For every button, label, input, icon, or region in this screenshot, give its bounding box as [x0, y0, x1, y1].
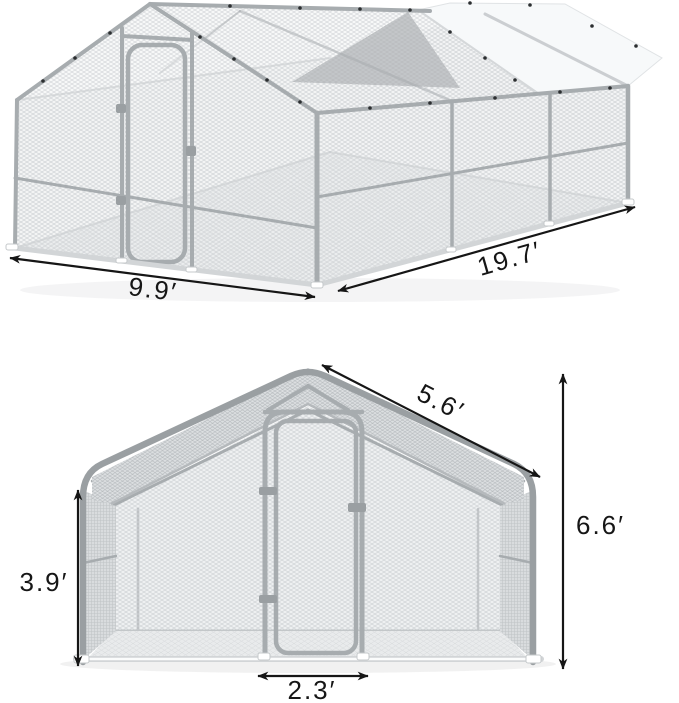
front-door-hinge-bottom [259, 595, 277, 603]
dim-label-front-total-height: 6.6′ [576, 510, 625, 540]
dim-label-front-door-width: 2.3′ [287, 675, 336, 703]
front-door-hinge-top [259, 487, 277, 495]
diagram-canvas: 9.9′ 19.7′ [0, 0, 679, 703]
dim-label-iso-width: 9.9′ [127, 271, 179, 307]
front-floor [86, 631, 530, 660]
front-right-wall-mesh [500, 490, 533, 660]
iso-door-hinge-top [116, 104, 126, 113]
iso-door-hinge-bottom [116, 196, 126, 205]
front-door-latch [348, 503, 366, 512]
iso-door-latch [186, 146, 196, 156]
iso-view: 9.9′ 19.7′ [6, 1, 662, 307]
front-left-wall-mesh [83, 490, 116, 660]
product-dimension-diagram: 9.9′ 19.7′ [0, 0, 679, 703]
front-view: 5.6′ 6.6′ 3.9′ 2.3′ [19, 365, 625, 703]
iso-front-left-post [15, 100, 17, 248]
dim-label-front-wall-height: 3.9′ [19, 567, 68, 597]
iso-right-wall-mesh [317, 86, 628, 285]
